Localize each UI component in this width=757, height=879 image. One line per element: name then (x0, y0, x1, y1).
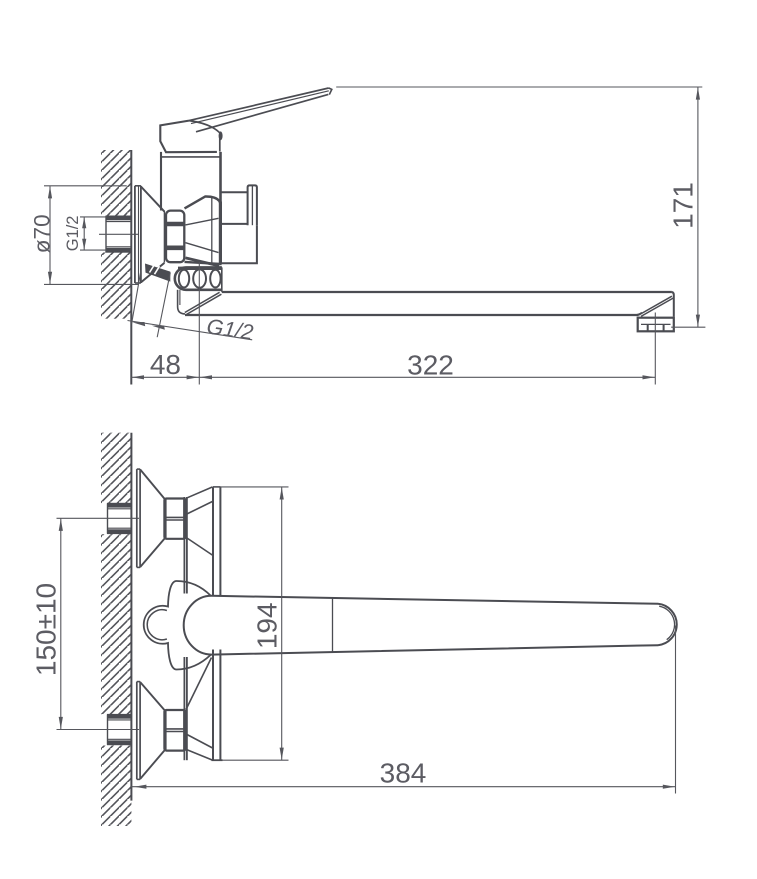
svg-text:150±10: 150±10 (31, 583, 62, 676)
svg-text:G1/2: G1/2 (205, 314, 255, 344)
svg-text:48: 48 (150, 349, 181, 380)
svg-text:322: 322 (407, 350, 454, 381)
svg-text:384: 384 (380, 758, 427, 789)
svg-text:194: 194 (251, 602, 282, 649)
svg-text:G1/2: G1/2 (64, 216, 82, 252)
svg-text:ø70: ø70 (29, 214, 54, 253)
svg-text:171: 171 (668, 182, 699, 229)
